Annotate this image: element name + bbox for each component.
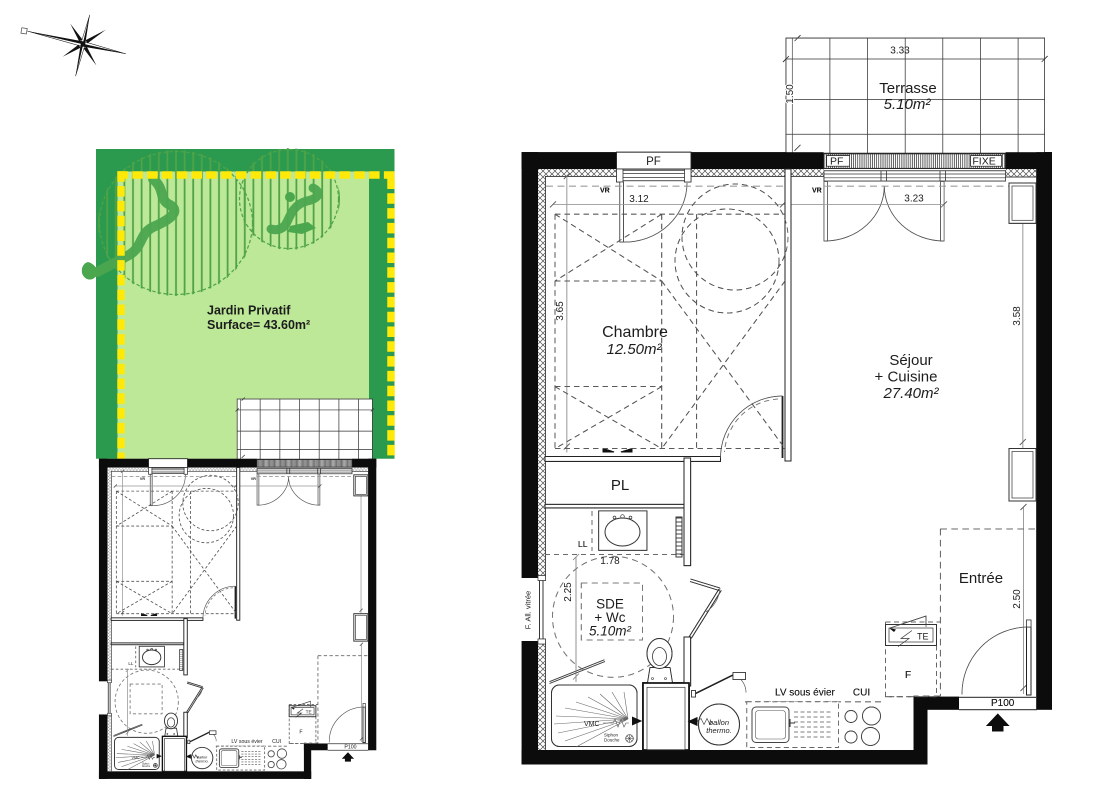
svg-text:1.50: 1.50 bbox=[785, 84, 796, 104]
svg-text:Séjour: Séjour bbox=[889, 352, 932, 369]
svg-text:VR: VR bbox=[251, 477, 256, 481]
svg-text:3.23: 3.23 bbox=[904, 194, 924, 205]
svg-text:3.33: 3.33 bbox=[890, 46, 910, 57]
svg-text:2.25: 2.25 bbox=[563, 582, 574, 602]
svg-text:12.50m²: 12.50m² bbox=[606, 341, 662, 358]
svg-text:thermo.: thermo. bbox=[196, 758, 209, 763]
svg-text:2.50: 2.50 bbox=[1012, 589, 1023, 609]
svg-text:Surface= 43.60m²: Surface= 43.60m² bbox=[207, 318, 310, 332]
svg-text:P100: P100 bbox=[344, 744, 356, 750]
svg-text:+ Cuisine: + Cuisine bbox=[875, 369, 938, 386]
svg-text:3.12: 3.12 bbox=[629, 194, 649, 205]
svg-text:TE: TE bbox=[306, 710, 312, 715]
svg-text:F. All. vitrée: F. All. vitrée bbox=[524, 591, 533, 629]
svg-text:PL: PL bbox=[611, 477, 629, 494]
svg-text:5.10m²: 5.10m² bbox=[589, 624, 632, 639]
svg-text:3.58: 3.58 bbox=[1012, 306, 1023, 326]
svg-text:5.10m²: 5.10m² bbox=[884, 96, 932, 113]
svg-text:CUI: CUI bbox=[272, 739, 281, 745]
svg-text:Siphon: Siphon bbox=[142, 763, 150, 765]
svg-text:LV sous évier: LV sous évier bbox=[231, 739, 262, 745]
svg-text:Entrée: Entrée bbox=[959, 570, 1003, 587]
svg-text:3.65: 3.65 bbox=[555, 301, 566, 321]
svg-text:Jardin Privatif: Jardin Privatif bbox=[207, 304, 291, 318]
svg-text:1.78: 1.78 bbox=[600, 556, 620, 567]
svg-text:27.40m²: 27.40m² bbox=[882, 385, 939, 402]
svg-text:LL: LL bbox=[128, 661, 133, 666]
svg-text:Terrasse: Terrasse bbox=[879, 80, 937, 97]
svg-text:VR: VR bbox=[140, 477, 145, 481]
svg-text:Chambre: Chambre bbox=[602, 324, 668, 341]
svg-text:Douche: Douche bbox=[142, 766, 151, 768]
svg-text:VMC: VMC bbox=[132, 756, 140, 760]
svg-text:F: F bbox=[299, 730, 302, 736]
